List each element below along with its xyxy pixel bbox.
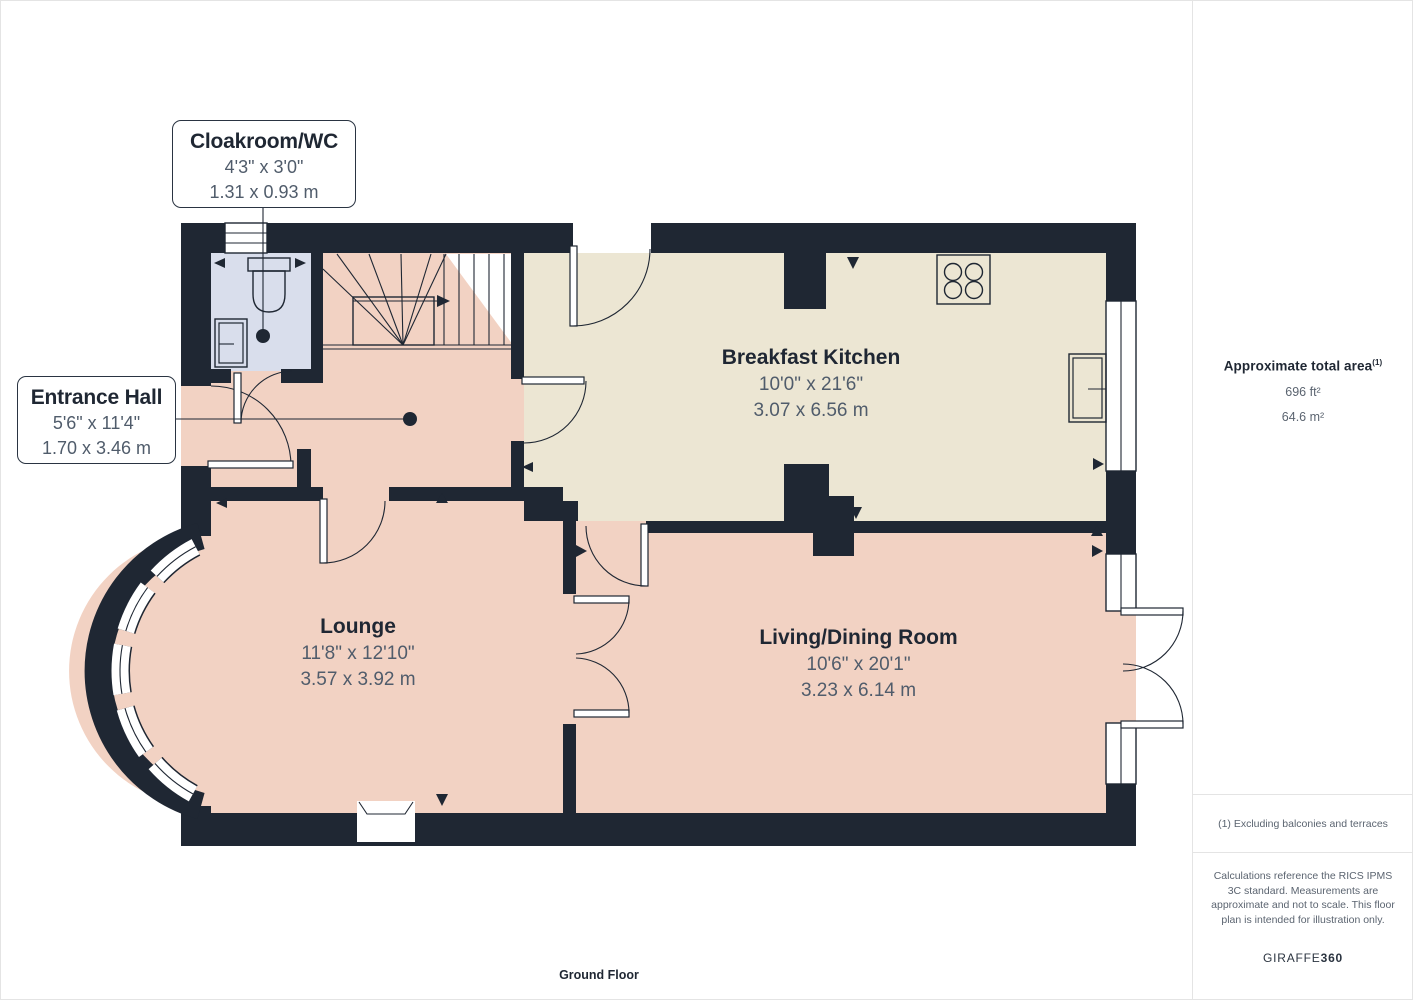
total-area-title: Approximate total area(1) bbox=[1193, 358, 1413, 374]
total-area-block: Approximate total area(1) 696 ft² 64.6 m… bbox=[1193, 358, 1413, 424]
room-metric-lounge: 3.57 x 3.92 m bbox=[238, 667, 478, 693]
floor-name: Ground Floor bbox=[499, 968, 699, 982]
room-metric-entrance-hall: 1.70 x 3.46 m bbox=[18, 436, 175, 461]
disclaimer-text: Calculations reference the RICS IPMS 3C … bbox=[1209, 869, 1397, 927]
floorplan-page: Cloakroom/WC 4'3" x 3'0" 1.31 x 0.93 m E… bbox=[0, 0, 1413, 1000]
label-box-cloakroom: Cloakroom/WC 4'3" x 3'0" 1.31 x 0.93 m bbox=[172, 120, 356, 208]
room-imperial-cloakroom: 4'3" x 3'0" bbox=[173, 155, 355, 180]
kitchen-window bbox=[1106, 301, 1136, 471]
info-sidebar: Approximate total area(1) 696 ft² 64.6 m… bbox=[1192, 1, 1413, 999]
room-label-living-dining: Living/Dining Room 10'6" x 20'1" 3.23 x … bbox=[706, 624, 1011, 704]
room-imperial-lounge: 11'8" x 12'10" bbox=[238, 641, 478, 667]
total-area-ft: 696 ft² bbox=[1193, 385, 1413, 399]
brand-logo: GIRAFFE360 bbox=[1193, 951, 1413, 965]
footnote: (1) Excluding balconies and terraces bbox=[1193, 794, 1413, 853]
room-imperial-living-dining: 10'6" x 20'1" bbox=[706, 652, 1011, 678]
room-name-breakfast-kitchen: Breakfast Kitchen bbox=[661, 344, 961, 372]
total-area-m: 64.6 m² bbox=[1193, 410, 1413, 424]
room-imperial-breakfast-kitchen: 10'0" x 21'6" bbox=[661, 372, 961, 398]
total-area-footnote-ref: (1) bbox=[1372, 358, 1382, 367]
room-metric-living-dining: 3.23 x 6.14 m bbox=[706, 678, 1011, 704]
room-name-cloakroom: Cloakroom/WC bbox=[173, 128, 355, 155]
cloakroom-window bbox=[225, 223, 267, 253]
living-window-top bbox=[1106, 554, 1136, 611]
room-name-lounge: Lounge bbox=[238, 613, 478, 641]
brand-name: GIRAFFE bbox=[1263, 951, 1321, 965]
brand-number: 360 bbox=[1321, 951, 1343, 965]
living-window-bottom bbox=[1106, 723, 1136, 784]
room-label-lounge: Lounge 11'8" x 12'10" 3.57 x 3.92 m bbox=[238, 613, 478, 693]
fireplace-niche bbox=[357, 801, 415, 842]
label-box-entrance-hall: Entrance Hall 5'6" x 11'4" 1.70 x 3.46 m bbox=[17, 376, 176, 464]
room-name-entrance-hall: Entrance Hall bbox=[18, 384, 175, 411]
room-name-living-dining: Living/Dining Room bbox=[706, 624, 1011, 652]
room-metric-cloakroom: 1.31 x 0.93 m bbox=[173, 180, 355, 205]
room-imperial-entrance-hall: 5'6" x 11'4" bbox=[18, 411, 175, 436]
total-area-title-text: Approximate total area bbox=[1224, 359, 1373, 374]
room-label-breakfast-kitchen: Breakfast Kitchen 10'0" x 21'6" 3.07 x 6… bbox=[661, 344, 961, 424]
room-metric-breakfast-kitchen: 3.07 x 6.56 m bbox=[661, 398, 961, 424]
